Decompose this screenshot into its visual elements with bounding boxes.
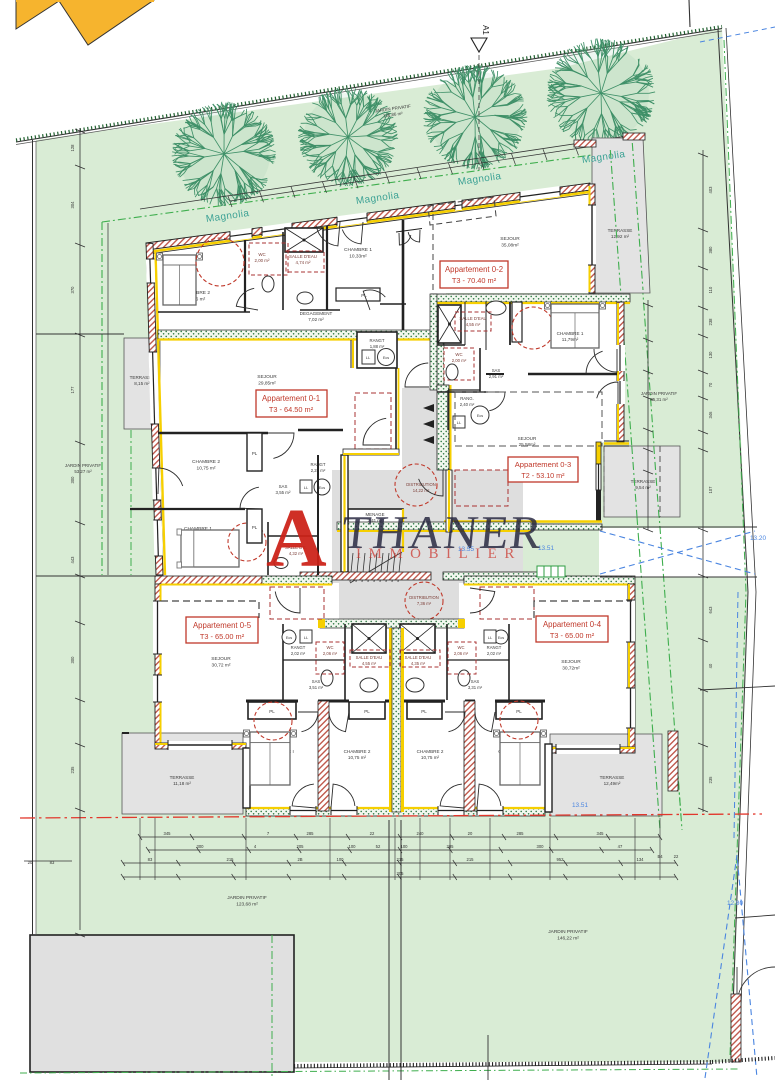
svg-text:134: 134	[637, 857, 645, 862]
svg-text:TERRASSE: TERRASSE	[608, 228, 633, 233]
svg-text:Ecs: Ecs	[498, 636, 504, 640]
svg-text:11,79m²: 11,79m²	[562, 337, 579, 342]
svg-text:2B: 2B	[297, 857, 302, 862]
svg-text:304: 304	[70, 201, 75, 209]
svg-text:215: 215	[397, 857, 405, 862]
svg-text:130: 130	[708, 351, 713, 359]
svg-text:380: 380	[708, 246, 713, 254]
svg-text:2,00 m²: 2,00 m²	[255, 258, 270, 263]
svg-text:JARDIN PRIVATIF: JARDIN PRIVATIF	[548, 929, 588, 935]
svg-text:Appartement 0-3: Appartement 0-3	[515, 460, 572, 469]
svg-text:T3 - 65.00 m²: T3 - 65.00 m²	[550, 631, 595, 640]
svg-text:53,27 m²: 53,27 m²	[74, 469, 92, 474]
svg-text:240: 240	[417, 831, 425, 836]
svg-text:WC: WC	[455, 352, 462, 357]
svg-text:403: 403	[708, 186, 713, 194]
svg-text:123,68 m²: 123,68 m²	[236, 901, 258, 907]
svg-text:40: 40	[708, 663, 713, 668]
svg-text:345: 345	[597, 831, 605, 836]
svg-text:20: 20	[468, 831, 473, 836]
svg-text:12.80: 12.80	[727, 900, 743, 907]
svg-text:WC: WC	[327, 645, 334, 650]
svg-text:2,00 m²: 2,00 m²	[452, 358, 467, 363]
svg-text:235: 235	[708, 776, 713, 784]
svg-text:346: 346	[708, 411, 713, 419]
svg-text:Ecs: Ecs	[477, 414, 483, 418]
svg-text:SAS: SAS	[279, 484, 288, 489]
svg-text:643: 643	[708, 606, 713, 614]
svg-text:Ecs: Ecs	[383, 356, 389, 360]
svg-text:4,74 m²: 4,74 m²	[296, 260, 311, 265]
svg-text:100: 100	[401, 844, 409, 849]
svg-text:4,55 m²: 4,55 m²	[466, 322, 481, 327]
svg-text:443: 443	[70, 556, 75, 564]
svg-text:Appartement 0-1: Appartement 0-1	[262, 394, 320, 403]
svg-text:952: 952	[557, 857, 565, 862]
svg-text:13.51: 13.51	[538, 545, 554, 552]
svg-text:205: 205	[447, 844, 455, 849]
svg-text:T3 - 70.40 m²: T3 - 70.40 m²	[452, 276, 497, 285]
svg-text:T2 - 53.10 m²: T2 - 53.10 m²	[521, 471, 565, 480]
svg-text:3,31 m²: 3,31 m²	[468, 685, 483, 690]
svg-text:8,15 m²: 8,15 m²	[134, 381, 150, 386]
svg-text:35,08m²: 35,08m²	[501, 242, 519, 248]
svg-text:SALLE D'EAU: SALLE D'EAU	[356, 655, 383, 660]
svg-text:300: 300	[537, 844, 545, 849]
svg-text:7,36 m²: 7,36 m²	[417, 601, 432, 606]
svg-text:13.20: 13.20	[750, 535, 766, 542]
svg-text:128: 128	[70, 144, 75, 152]
svg-text:SALLE D'EAU: SALLE D'EAU	[289, 254, 317, 259]
svg-text:238: 238	[708, 318, 713, 326]
svg-text:205: 205	[297, 844, 305, 849]
svg-text:70: 70	[708, 382, 713, 387]
svg-text:WC: WC	[258, 252, 265, 257]
svg-text:A: A	[266, 492, 327, 585]
svg-text:SEJOUR: SEJOUR	[518, 436, 537, 441]
svg-text:1,88 m²: 1,88 m²	[370, 344, 385, 349]
svg-text:215: 215	[227, 857, 235, 862]
svg-text:Appartement 0-5: Appartement 0-5	[193, 621, 252, 630]
svg-text:12,49m²: 12,49m²	[604, 781, 621, 786]
svg-text:2,06 m²: 2,06 m²	[454, 651, 469, 656]
svg-text:CHAMBRE 1: CHAMBRE 1	[557, 331, 584, 336]
svg-text:25,58m²: 25,58m²	[519, 442, 536, 447]
svg-text:WC: WC	[458, 645, 465, 650]
svg-text:LL: LL	[304, 485, 309, 490]
svg-text:PL: PL	[269, 709, 275, 714]
svg-text:305: 305	[397, 871, 405, 876]
svg-text:LL: LL	[304, 635, 309, 640]
svg-text:CHAMBRE 2: CHAMBRE 2	[417, 749, 444, 754]
svg-text:TERRASSE: TERRASSE	[600, 775, 625, 780]
svg-text:2,40 m²: 2,40 m²	[460, 402, 475, 407]
svg-text:285: 285	[517, 831, 525, 836]
svg-text:7,02 m²: 7,02 m²	[308, 317, 324, 322]
svg-text:9,54 m²: 9,54 m²	[635, 485, 651, 490]
svg-text:LL: LL	[488, 635, 493, 640]
svg-text:285: 285	[307, 831, 315, 836]
svg-text:300: 300	[70, 476, 75, 484]
svg-text:100: 100	[337, 857, 345, 862]
svg-text:13.51: 13.51	[572, 802, 588, 809]
svg-text:215: 215	[467, 857, 475, 862]
svg-text:300: 300	[70, 656, 75, 664]
svg-text:LL: LL	[366, 355, 371, 360]
svg-text:DEGAGEMENT: DEGAGEMENT	[300, 311, 333, 316]
svg-text:B4: B4	[657, 854, 663, 859]
svg-text:370: 370	[70, 286, 75, 294]
svg-text:83: 83	[148, 857, 153, 862]
svg-text:3,51 m²: 3,51 m²	[309, 685, 324, 690]
svg-text:PL: PL	[516, 709, 522, 714]
svg-text:CHAMBRE 2: CHAMBRE 2	[192, 459, 220, 465]
svg-text:RANGT: RANGT	[487, 645, 502, 650]
svg-text:35,31 m²: 35,31 m²	[650, 397, 668, 402]
svg-text:JARDIN PRIVATIF: JARDIN PRIVATIF	[227, 895, 267, 901]
svg-text:10,75 m²: 10,75 m²	[197, 465, 216, 471]
svg-text:PL: PL	[364, 709, 370, 714]
svg-text:DISTRIBUTION: DISTRIBUTION	[409, 595, 439, 600]
svg-text:CHAMBRE 1: CHAMBRE 1	[344, 247, 372, 253]
svg-text:10,33m²: 10,33m²	[349, 253, 367, 259]
svg-text:4,35 m²: 4,35 m²	[411, 661, 426, 666]
svg-text:SEJOUR: SEJOUR	[257, 374, 277, 380]
svg-text:30,72 m²: 30,72 m²	[212, 662, 231, 668]
svg-text:Appartement 0-4: Appartement 0-4	[543, 620, 602, 629]
svg-text:JARDIN PRIVATIF: JARDIN PRIVATIF	[65, 463, 102, 468]
svg-text:T3 - 65.00 m²: T3 - 65.00 m²	[200, 632, 245, 641]
svg-text:RANGT: RANGT	[291, 645, 306, 650]
svg-text:T3 - 64.50 m²: T3 - 64.50 m²	[269, 405, 314, 414]
svg-text:30,72m²: 30,72m²	[562, 665, 580, 671]
svg-text:177: 177	[70, 386, 75, 394]
svg-text:10,75 m²: 10,75 m²	[421, 755, 440, 760]
svg-text:345: 345	[164, 831, 172, 836]
svg-text:22: 22	[674, 854, 679, 859]
svg-text:11,18 m²: 11,18 m²	[173, 781, 191, 786]
svg-text:PL: PL	[252, 525, 258, 530]
svg-text:2,02 m²: 2,02 m²	[291, 651, 306, 656]
svg-text:110: 110	[708, 286, 713, 293]
svg-text:Ecs: Ecs	[286, 636, 292, 640]
svg-text:235: 235	[70, 766, 75, 774]
svg-text:SALLE D'EAU: SALLE D'EAU	[459, 316, 486, 321]
svg-text:107: 107	[708, 486, 713, 494]
svg-text:52: 52	[376, 844, 381, 849]
svg-text:146,22 m²: 146,22 m²	[557, 935, 579, 941]
svg-text:Appartement 0-2: Appartement 0-2	[445, 265, 503, 274]
svg-text:RANG.: RANG.	[460, 396, 474, 401]
svg-text:SAS: SAS	[312, 679, 321, 684]
svg-text:300: 300	[197, 844, 205, 849]
svg-text:TERRASSE: TERRASSE	[170, 775, 195, 780]
svg-text:IMMOBILIER: IMMOBILIER	[356, 546, 522, 562]
svg-text:JARDIN PRIVATIF: JARDIN PRIVATIF	[641, 391, 678, 396]
svg-text:PL: PL	[421, 709, 427, 714]
svg-text:100: 100	[349, 844, 357, 849]
svg-text:47: 47	[618, 844, 623, 849]
svg-text:SEJOUR: SEJOUR	[211, 656, 231, 662]
svg-text:SEJOUR: SEJOUR	[561, 659, 581, 665]
svg-text:12,92 m²: 12,92 m²	[611, 234, 630, 239]
svg-text:Ecs: Ecs	[319, 486, 325, 490]
svg-text:RANGT: RANGT	[369, 338, 384, 343]
svg-text:PL: PL	[252, 451, 258, 456]
svg-text:SAS: SAS	[471, 679, 480, 684]
svg-text:LL: LL	[457, 420, 462, 425]
svg-text:A1: A1	[481, 25, 490, 35]
svg-text:2,02 m²: 2,02 m²	[487, 651, 502, 656]
svg-text:22: 22	[370, 831, 375, 836]
svg-text:SEJOUR: SEJOUR	[500, 236, 520, 242]
svg-text:CHAMBRE 2: CHAMBRE 2	[344, 749, 371, 754]
svg-text:SALLE D'EAU: SALLE D'EAU	[405, 655, 432, 660]
svg-text:4,55 m²: 4,55 m²	[362, 661, 377, 666]
svg-text:2,06 m²: 2,06 m²	[323, 651, 338, 656]
svg-text:13.55: 13.55	[458, 546, 474, 553]
svg-text:SAS: SAS	[492, 368, 501, 373]
svg-text:10,75 m²: 10,75 m²	[348, 755, 367, 760]
svg-text:29,85m²: 29,85m²	[258, 380, 276, 386]
